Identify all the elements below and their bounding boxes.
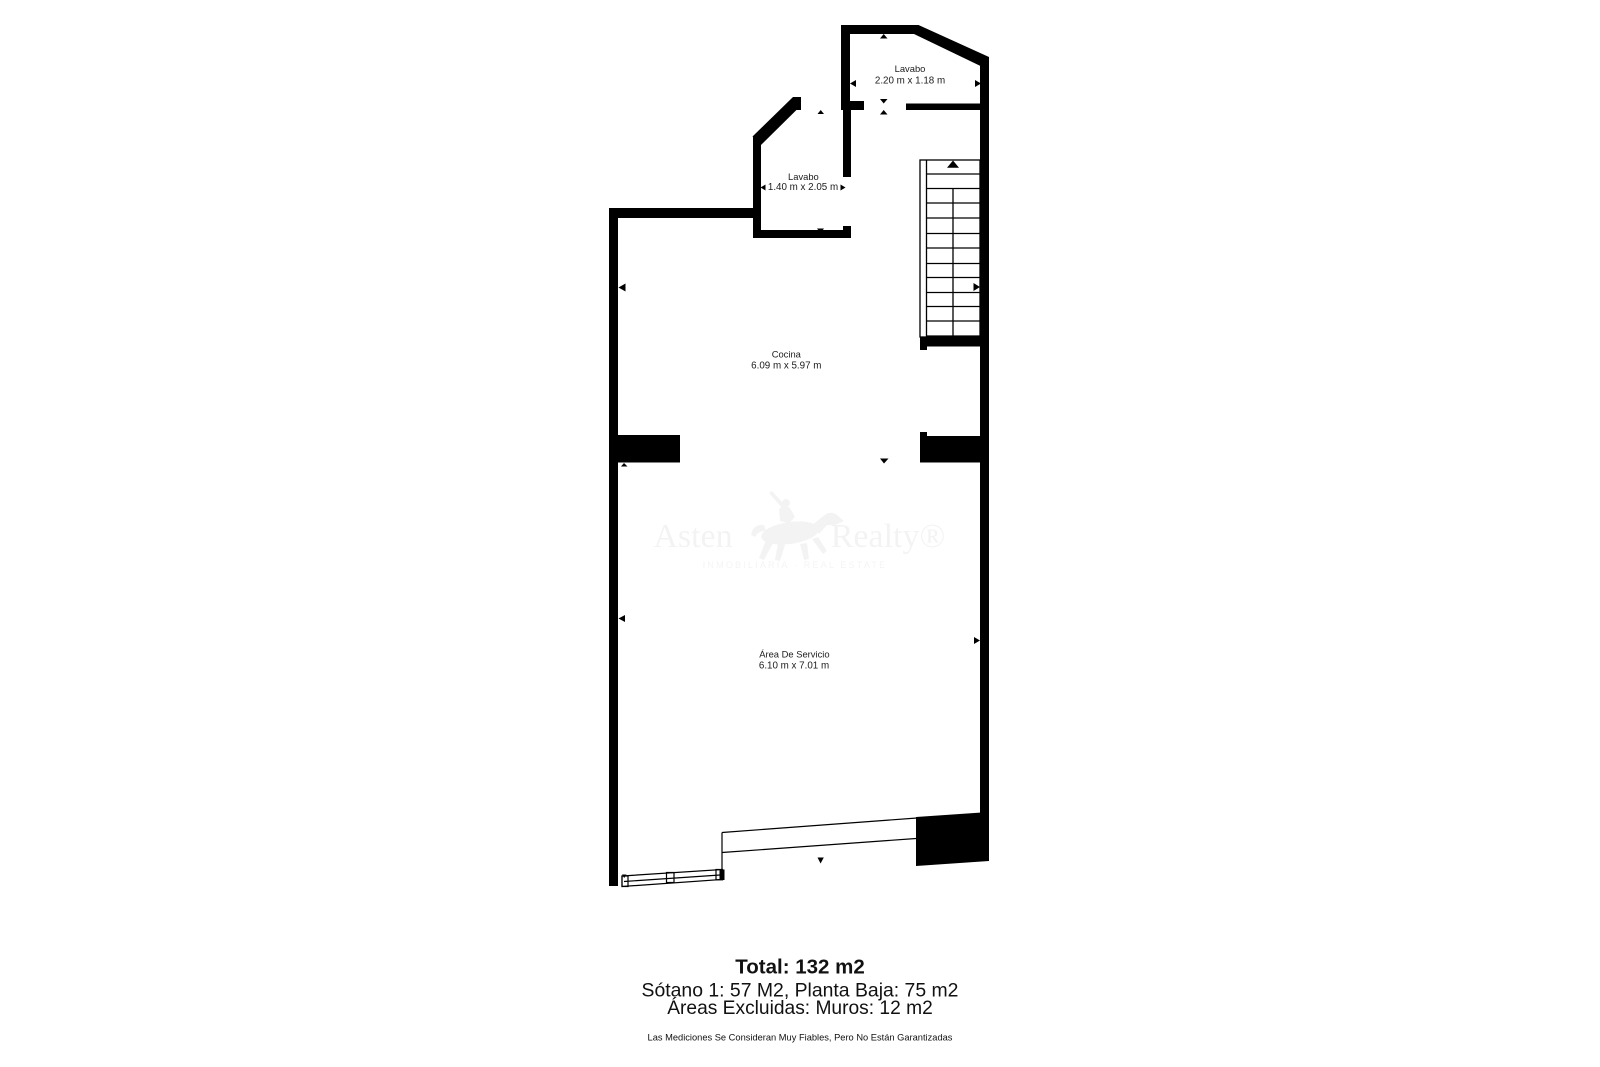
svg-text:Área De Servicio: Área De Servicio <box>759 648 829 659</box>
svg-text:6.10 m x 7.01 m: 6.10 m x 7.01 m <box>759 661 829 672</box>
svg-text:Áreas Excluidas: Muros: 12 m2: Áreas Excluidas: Muros: 12 m2 <box>667 998 933 1019</box>
svg-text:2.20 m x 1.18 m: 2.20 m x 1.18 m <box>875 75 945 86</box>
svg-text:6.09 m x 5.97 m: 6.09 m x 5.97 m <box>751 361 821 372</box>
svg-text:Las Mediciones Se Consideran M: Las Mediciones Se Consideran Muy Fiables… <box>648 1032 953 1042</box>
svg-text:Realty®: Realty® <box>831 518 946 555</box>
svg-text:Cocina: Cocina <box>772 348 802 359</box>
svg-text:1.40 m x 2.05 m: 1.40 m x 2.05 m <box>768 182 838 193</box>
svg-text:INMOBILIARIA · REAL ESTATE: INMOBILIARIA · REAL ESTATE <box>703 560 888 570</box>
svg-text:Lavabo: Lavabo <box>895 63 926 74</box>
svg-text:Asten: Asten <box>653 518 732 555</box>
svg-text:Lavabo: Lavabo <box>788 171 819 182</box>
svg-text:Total: 132 m2: Total: 132 m2 <box>735 956 865 979</box>
